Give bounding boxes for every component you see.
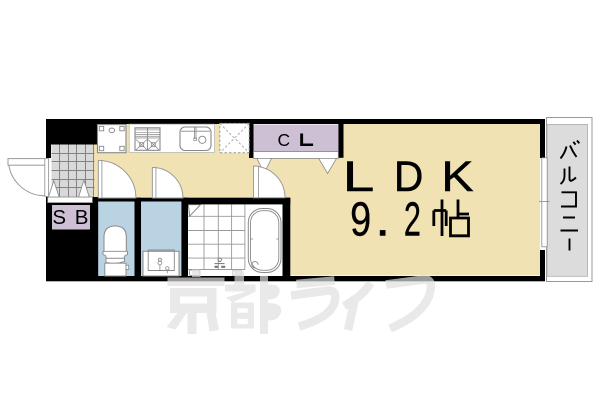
svg-text:K: K [441,153,473,201]
svg-text:S: S [52,206,66,229]
svg-text:9: 9 [350,193,371,246]
svg-text:C: C [277,130,290,150]
svg-text:.: . [375,192,390,246]
svg-text:B: B [75,206,89,229]
svg-text:2: 2 [404,192,421,246]
